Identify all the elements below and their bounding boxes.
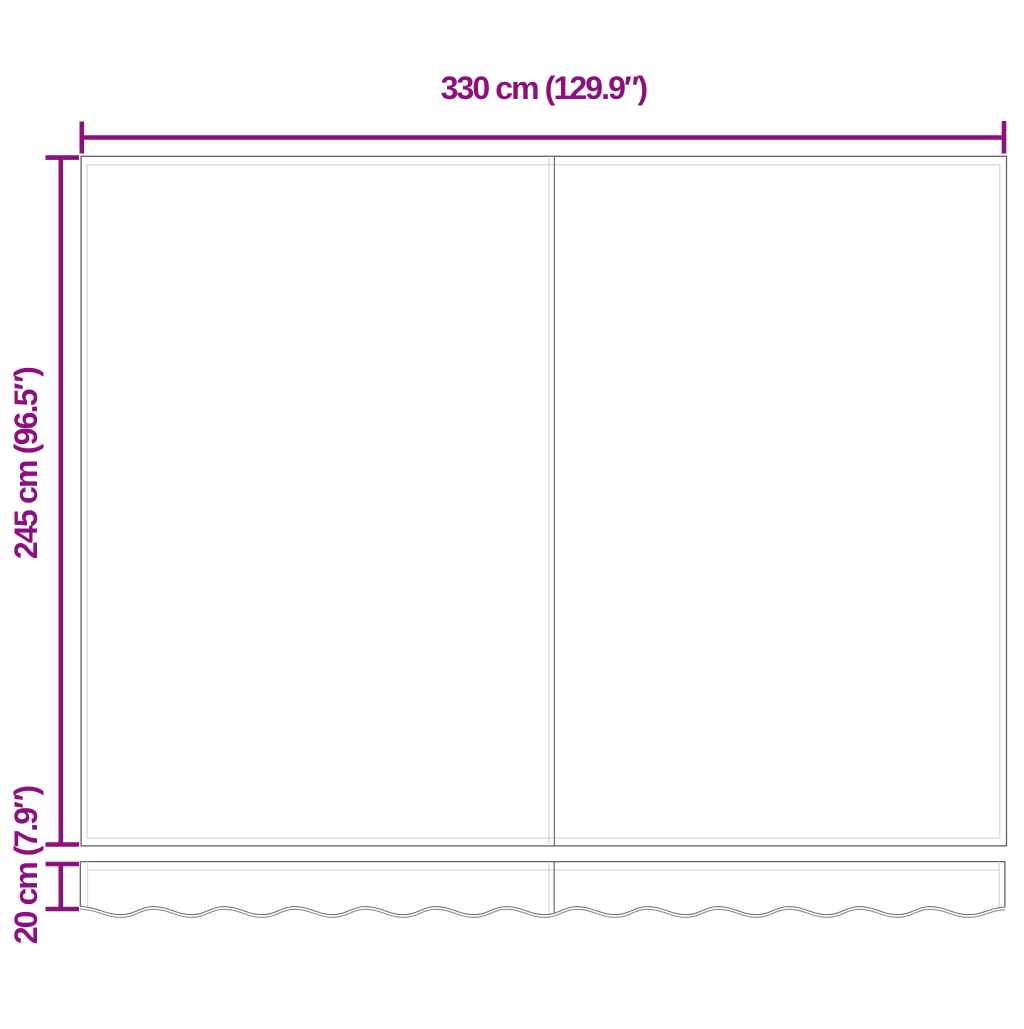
svg-text:20 cm (7.9″): 20 cm (7.9″) xyxy=(8,786,44,945)
svg-text:245 cm (96.5″): 245 cm (96.5″) xyxy=(8,367,44,559)
svg-text:330 cm (129.9″): 330 cm (129.9″) xyxy=(441,70,648,106)
